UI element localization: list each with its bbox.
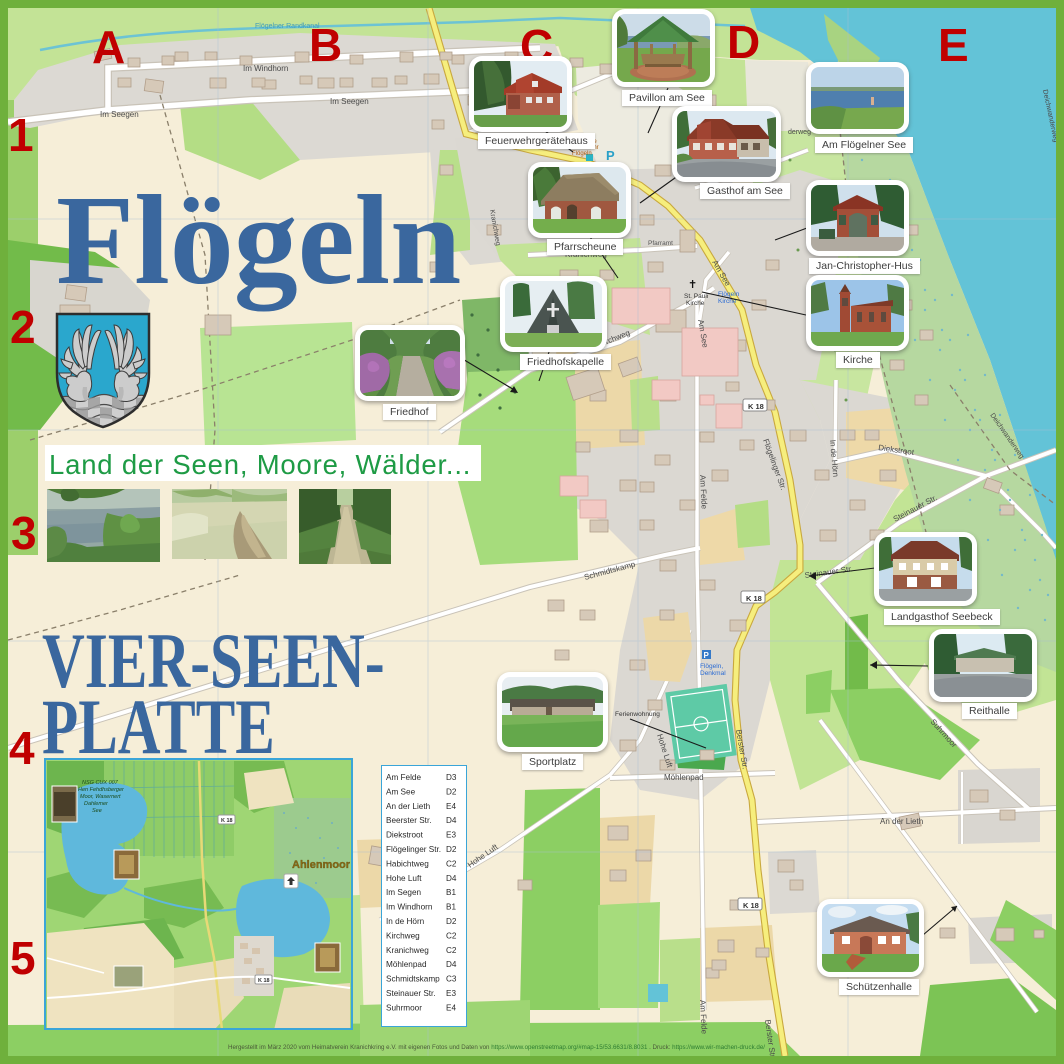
svg-text:E4: E4 [446, 802, 456, 811]
svg-text:B1: B1 [446, 903, 456, 912]
svg-text:St. Pauli: St. Pauli [684, 293, 708, 300]
svg-text:Denkmal: Denkmal [700, 670, 726, 677]
svg-text:D4: D4 [446, 874, 457, 883]
svg-text:E3: E3 [446, 989, 456, 998]
svg-text:Flögeln: Flögeln [718, 291, 740, 298]
svg-text:Hohe Luft: Hohe Luft [386, 874, 422, 883]
svg-text:Am Felde: Am Felde [698, 1000, 709, 1035]
svg-text:Möhlenpad: Möhlenpad [664, 773, 704, 782]
svg-text:Kirche: Kirche [686, 300, 705, 307]
svg-text:Am Felde: Am Felde [698, 475, 709, 510]
svg-text:An der Lieth: An der Lieth [880, 817, 923, 826]
svg-text:C2: C2 [446, 946, 457, 955]
svg-text:E3: E3 [446, 831, 456, 840]
svg-text:Beerster Str.: Beerster Str. [386, 816, 432, 825]
svg-text:Im Windhorn: Im Windhorn [386, 903, 433, 912]
svg-text:Im Segen: Im Segen [386, 888, 421, 897]
svg-text:✝: ✝ [688, 279, 697, 291]
svg-text:P: P [704, 651, 710, 660]
svg-text:C2: C2 [446, 931, 457, 940]
svg-text:Schmidtskamp: Schmidtskamp [386, 975, 440, 984]
svg-text:K 18: K 18 [221, 818, 233, 824]
svg-text:D2: D2 [446, 787, 457, 796]
svg-text:Am Felde: Am Felde [386, 773, 421, 782]
svg-text:C3: C3 [446, 975, 457, 984]
svg-text:Dahlemer: Dahlemer [84, 801, 109, 807]
svg-text:B1: B1 [446, 888, 456, 897]
svg-text:C2: C2 [446, 859, 457, 868]
svg-text:Habichtweg: Habichtweg [386, 859, 429, 868]
svg-text:An der Lieth: An der Lieth [386, 802, 431, 811]
svg-text:Im Seegen: Im Seegen [330, 97, 369, 106]
svg-text:K 18: K 18 [746, 594, 762, 603]
svg-text:K 18: K 18 [743, 901, 759, 910]
svg-text:Flögelinger Str.: Flögelinger Str. [386, 845, 441, 854]
svg-text:E4: E4 [446, 1003, 456, 1012]
svg-text:K 18: K 18 [748, 402, 764, 411]
svg-text:Flögeln,: Flögeln, [700, 663, 723, 670]
svg-text:Flögeln: Flögeln [572, 151, 592, 157]
svg-text:K 18: K 18 [258, 978, 270, 984]
svg-text:D4: D4 [446, 816, 457, 825]
svg-text:NSG CUX 007: NSG CUX 007 [82, 780, 119, 786]
svg-text:derweg: derweg [788, 129, 811, 136]
svg-text:Hen Fehdhsberger: Hen Fehdhsberger [78, 787, 125, 793]
svg-text:D4: D4 [446, 960, 457, 969]
svg-text:D2: D2 [446, 917, 457, 926]
svg-text:D3: D3 [446, 773, 457, 782]
svg-text:See: See [92, 808, 102, 814]
svg-text:Diekstroot: Diekstroot [386, 831, 424, 840]
svg-text:Moor, Wasernert: Moor, Wasernert [80, 794, 121, 800]
svg-text:Ahlenmoor: Ahlenmoor [292, 859, 351, 871]
svg-text:Im Seegen: Im Seegen [100, 110, 139, 119]
svg-text:Möhlenpad: Möhlenpad [386, 960, 427, 969]
svg-text:Kirchweg: Kirchweg [386, 931, 420, 940]
svg-text:Pfarramt: Pfarramt [648, 240, 673, 247]
svg-text:In de Hörn: In de Hörn [386, 917, 425, 926]
svg-text:Im Windhorn: Im Windhorn [243, 64, 288, 73]
svg-text:Am See: Am See [386, 787, 416, 796]
svg-text:Ferienwohnung: Ferienwohnung [615, 711, 660, 718]
svg-text:Kranichweg: Kranichweg [386, 946, 429, 955]
svg-text:Suhrmoor: Suhrmoor [386, 1003, 422, 1012]
svg-text:Steinauer Str.: Steinauer Str. [386, 989, 436, 998]
svg-text:P: P [606, 148, 615, 163]
svg-text:D2: D2 [446, 845, 457, 854]
